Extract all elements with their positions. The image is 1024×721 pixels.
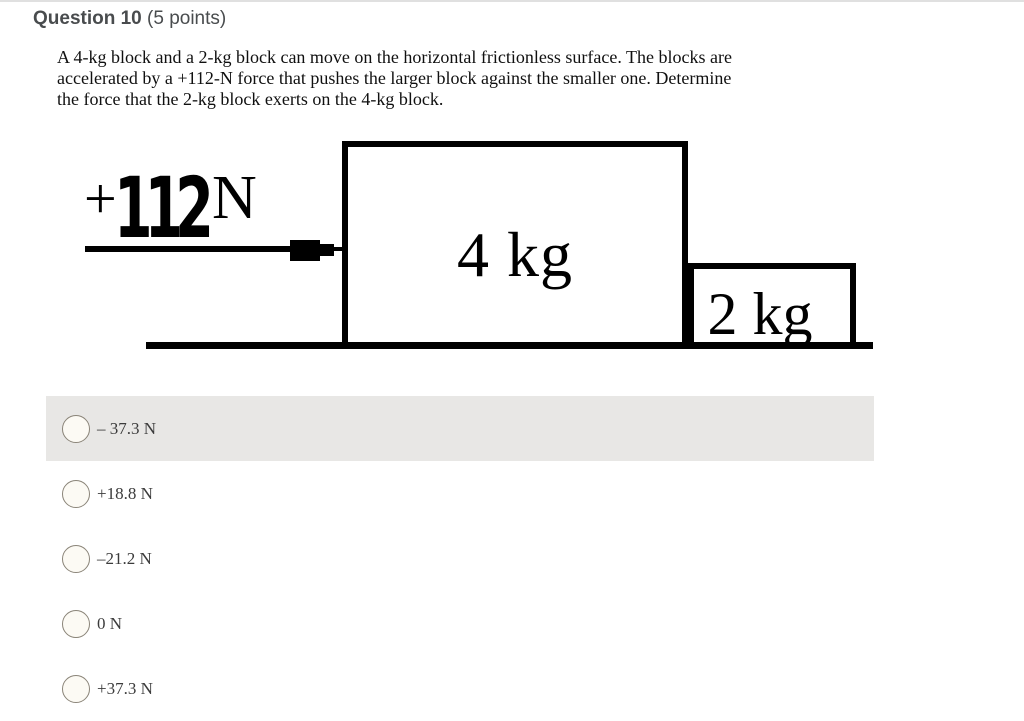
answer-option-5[interactable]: +37.3 N <box>46 656 874 721</box>
force-sign-label: + <box>84 170 117 228</box>
option-label: +18.8 N <box>97 484 153 504</box>
option-label: 0 N <box>97 614 122 634</box>
answer-option-1[interactable]: – 37.3 N <box>46 396 874 461</box>
radio-button[interactable] <box>62 480 90 508</box>
force-arrowhead-icon <box>290 240 320 261</box>
radio-button[interactable] <box>62 545 90 573</box>
force-arrow-tip <box>334 247 343 251</box>
force-value-label: 112 <box>114 166 206 250</box>
question-text: A 4-kg block and a 2-kg block can move o… <box>57 47 732 110</box>
question-text-line: the force that the 2-kg block exerts on … <box>57 89 732 110</box>
question-points: (5 points) <box>147 8 226 29</box>
option-label: +37.3 N <box>97 679 153 699</box>
question-title: Question 10 <box>33 8 142 29</box>
question-header: Question 10 (5 points) <box>33 8 226 30</box>
radio-button[interactable] <box>62 675 90 703</box>
block-4kg: 4 kg <box>342 141 688 342</box>
page-top-border <box>0 0 1024 2</box>
answer-option-2[interactable]: +18.8 N <box>46 461 874 526</box>
option-label: – 37.3 N <box>97 419 156 439</box>
block-2kg-label: 2 kg <box>708 284 813 344</box>
force-arrowhead-icon <box>318 244 334 256</box>
force-arrow-line <box>85 246 292 252</box>
question-text-line: A 4-kg block and a 2-kg block can move o… <box>57 47 732 68</box>
option-label: –21.2 N <box>97 549 152 569</box>
radio-button[interactable] <box>62 610 90 638</box>
radio-button[interactable] <box>62 415 90 443</box>
answer-option-4[interactable]: 0 N <box>46 591 874 656</box>
block-4kg-label: 4 kg <box>457 223 573 287</box>
question-text-line: accelerated by a +112-N force that pushe… <box>57 68 732 89</box>
answer-option-3[interactable]: –21.2 N <box>46 526 874 591</box>
ground-line <box>146 342 873 349</box>
force-unit-label: N <box>212 167 257 229</box>
block-2kg: 2 kg <box>688 263 856 342</box>
